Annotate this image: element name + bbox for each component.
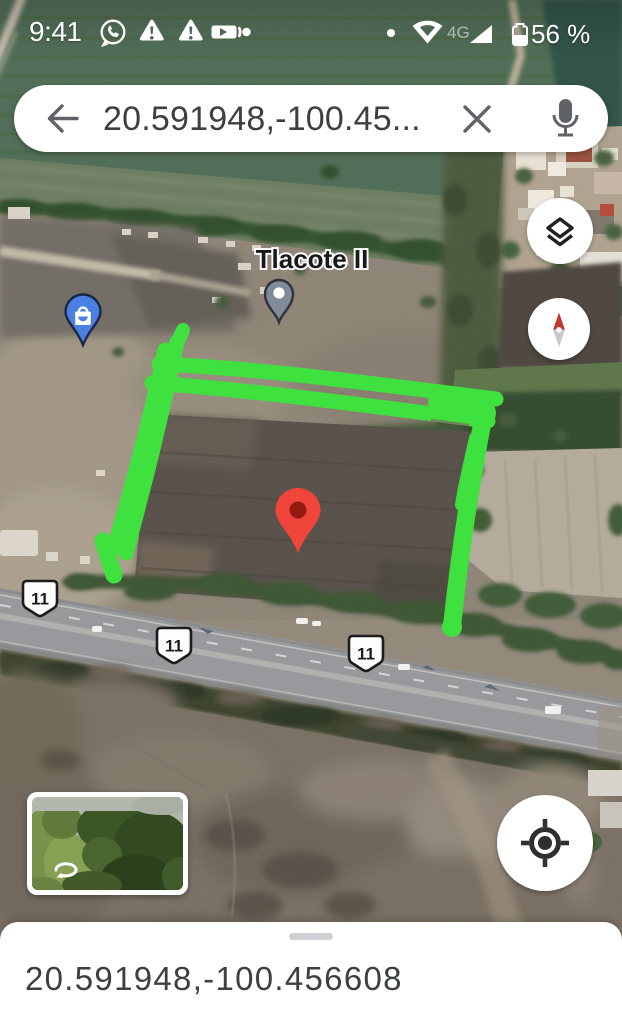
svg-text:11: 11 — [165, 636, 183, 655]
svg-text:11: 11 — [31, 589, 49, 608]
svg-text:Tlacote II: Tlacote II — [256, 244, 369, 274]
svg-text:4G: 4G — [447, 23, 470, 42]
svg-text:11: 11 — [357, 644, 375, 663]
